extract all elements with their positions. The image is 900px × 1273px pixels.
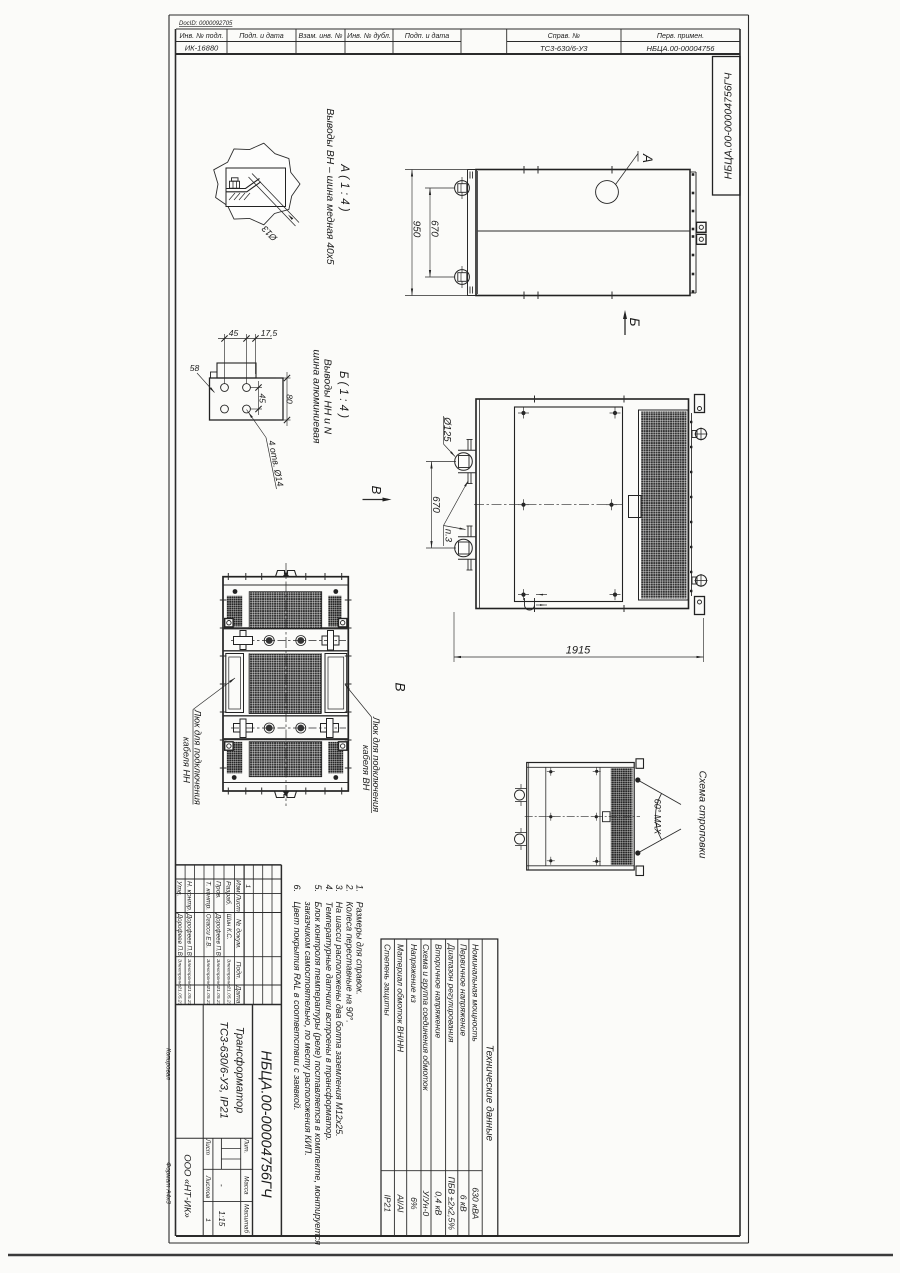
- svg-text:IP21: IP21: [383, 1194, 393, 1212]
- svg-text:Формат А4х3: Формат А4х3: [165, 1162, 172, 1204]
- svg-text:Лит.: Лит.: [242, 1138, 249, 1154]
- svg-text:1915: 1915: [566, 645, 591, 657]
- svg-text:1: 1: [244, 884, 251, 888]
- svg-text:Огасси Е.В.: Огасси Е.В.: [205, 914, 212, 948]
- svg-text:45: 45: [258, 393, 268, 403]
- svg-text:НБЦА.00-00004756ГЧ: НБЦА.00-00004756ГЧ: [258, 1050, 274, 1198]
- svg-text:НБЦА.00-00004756ГЧ: НБЦА.00-00004756ГЧ: [723, 72, 735, 180]
- svg-text:Дорофеев П.В.: Дорофеев П.В.: [176, 913, 183, 958]
- svg-text:0,4 кВ: 0,4 кВ: [433, 1191, 443, 1215]
- svg-text:670: 670: [429, 220, 440, 237]
- svg-text:А ( 1 : 4 ): А ( 1 : 4 ): [338, 163, 350, 211]
- svg-text:Электронно: Электронно: [177, 959, 183, 988]
- svg-text:Диапазон регулирования: Диапазон регулирования: [447, 943, 457, 1043]
- svg-text:Схема строповки: Схема строповки: [697, 771, 709, 859]
- svg-text:60° MAX: 60° MAX: [653, 799, 663, 836]
- svg-text:В: В: [369, 486, 384, 495]
- svg-text:17,5: 17,5: [261, 328, 278, 338]
- svg-text:-: -: [217, 1184, 226, 1187]
- svg-text:Лист: Лист: [235, 893, 242, 912]
- svg-text:Размеры для справок.: Размеры для справок.: [355, 902, 365, 995]
- svg-text:2.: 2.: [344, 884, 354, 893]
- svg-text:Технические данные: Технические данные: [484, 1045, 495, 1142]
- svg-text:Дорофеев П.В.: Дорофеев П.В.: [186, 913, 193, 958]
- svg-text:Блок контроля температуры (рел: Блок контроля температуры (реле) поставл…: [313, 902, 323, 1246]
- svg-text:45: 45: [229, 328, 239, 338]
- svg-text:58: 58: [190, 363, 200, 373]
- svg-text:6%: 6%: [409, 1197, 419, 1210]
- svg-text:Ø125: Ø125: [441, 416, 452, 442]
- svg-text:1.: 1.: [355, 885, 365, 893]
- svg-text:Al/Al: Al/Al: [396, 1193, 406, 1213]
- svg-text:ИК-16880: ИК-16880: [185, 44, 219, 53]
- svg-text:НБЦА.00-00004756: НБЦА.00-00004756: [647, 44, 716, 53]
- svg-text:1:15: 1:15: [217, 1211, 226, 1227]
- svg-text:Подп. и дата: Подп. и дата: [239, 32, 283, 40]
- svg-text:21.05.23: 21.05.23: [226, 986, 232, 1006]
- svg-text:21.05.23: 21.05.23: [186, 986, 192, 1006]
- svg-text:ООО «НТ-ИК»: ООО «НТ-ИК»: [182, 1154, 193, 1218]
- svg-text:Вторичное напряжение: Вторичное напряжение: [433, 944, 443, 1039]
- svg-text:Справ. №: Справ. №: [548, 32, 581, 40]
- svg-text:Трансформатор: Трансформатор: [234, 1027, 246, 1114]
- svg-text:№ докум.: № докум.: [235, 919, 243, 949]
- svg-text:Цвет покрытия RAL в соответств: Цвет покрытия RAL в соответствии с заявк…: [292, 902, 302, 1111]
- svg-text:Электронно: Электронно: [205, 959, 211, 988]
- svg-text:В: В: [393, 682, 408, 691]
- svg-text:На шасси расположены два болта: На шасси расположены два болта заземлени…: [334, 902, 344, 1137]
- svg-text:Утв.: Утв.: [176, 880, 183, 897]
- svg-text:Номинальная мощность: Номинальная мощность: [471, 944, 481, 1042]
- svg-text:80: 80: [285, 394, 295, 404]
- svg-text:Перв. примен.: Перв. примен.: [657, 32, 704, 40]
- svg-text:Люк для подключения: Люк для подключения: [371, 716, 381, 812]
- svg-text:Шин К.С.: Шин К.С.: [225, 914, 232, 940]
- svg-text:21.05.23: 21.05.23: [205, 986, 211, 1006]
- svg-text:Выводы ВН – шина медная 40х5: Выводы ВН – шина медная 40х5: [324, 108, 335, 264]
- svg-text:Листов: Листов: [204, 1175, 211, 1199]
- svg-text:Материал обмоток ВН/НН: Материал обмоток ВН/НН: [396, 944, 406, 1053]
- svg-text:Подп. и дата: Подп. и дата: [405, 32, 449, 40]
- svg-text:6.: 6.: [292, 885, 302, 893]
- svg-text:Электронно: Электронно: [215, 959, 221, 988]
- svg-text:21.05.23: 21.05.23: [215, 986, 221, 1006]
- svg-text:Инв. № подл.: Инв. № подл.: [179, 32, 223, 40]
- svg-text:п.3: п.3: [443, 529, 454, 543]
- svg-text:Изм: Изм: [235, 880, 242, 893]
- svg-text:Температурные датчики встроены: Температурные датчики встроены в трансфо…: [324, 902, 334, 1141]
- svg-text:950: 950: [411, 221, 422, 238]
- svg-text:Разраб.: Разраб.: [225, 881, 233, 906]
- svg-text:ТС3-630/6-У3, IP21: ТС3-630/6-У3, IP21: [218, 1021, 230, 1119]
- svg-text:ПБВ ±2х2,5%: ПБВ ±2х2,5%: [447, 1177, 457, 1231]
- svg-text:У/Ун-0: У/Ун-0: [421, 1189, 431, 1216]
- svg-text:DocID: 0000092705: DocID: 0000092705: [179, 21, 233, 27]
- svg-text:кабеля НН: кабеля НН: [182, 737, 192, 783]
- svg-text:Масштаб: Масштаб: [242, 1204, 249, 1233]
- svg-text:4.: 4.: [324, 885, 334, 893]
- svg-text:Подп.: Подп.: [235, 961, 243, 979]
- svg-text:5.: 5.: [313, 885, 323, 893]
- svg-text:Копировал: Копировал: [165, 1048, 172, 1080]
- svg-text:6 кВ: 6 кВ: [458, 1195, 468, 1212]
- svg-text:шина алюминиевая: шина алюминиевая: [311, 350, 322, 444]
- svg-text:Б ( 1 : 4 ): Б ( 1 : 4 ): [337, 371, 349, 418]
- svg-text:Взам. инв. №: Взам. инв. №: [299, 32, 343, 40]
- svg-text:Масса: Масса: [242, 1176, 249, 1195]
- svg-text:А: А: [640, 153, 655, 163]
- svg-text:Б: Б: [627, 318, 642, 327]
- svg-text:21.05.23: 21.05.23: [177, 986, 183, 1006]
- svg-text:Дата: Дата: [235, 985, 242, 1004]
- svg-text:Люк для подключения: Люк для подключения: [193, 709, 203, 805]
- svg-text:630 кВА: 630 кВА: [471, 1187, 481, 1219]
- svg-text:3.: 3.: [334, 885, 344, 893]
- svg-text:Лист: Лист: [204, 1138, 211, 1155]
- svg-text:Колеса переставные на 90°.: Колеса переставные на 90°.: [344, 902, 354, 1023]
- svg-text:Пров.: Пров.: [214, 881, 221, 899]
- svg-text:Схема и группа соединения обмо: Схема и группа соединения обмоток: [421, 944, 431, 1092]
- svg-text:670: 670: [430, 496, 441, 513]
- svg-text:1: 1: [204, 1218, 211, 1222]
- svg-text:кабеля ВН: кабеля ВН: [361, 745, 371, 791]
- svg-text:Н. контр.: Н. контр.: [185, 881, 192, 912]
- svg-text:ТС3-630/6-У3: ТС3-630/6-У3: [540, 44, 588, 53]
- svg-text:заказчиком самостоятельно, по: заказчиком самостоятельно, по месту расп…: [303, 901, 313, 1156]
- svg-text:Дорофеев П.В.: Дорофеев П.В.: [215, 913, 222, 958]
- svg-text:Напряжение кз: Напряжение кз: [409, 944, 419, 1003]
- svg-text:Первичное напряжение: Первичное напряжение: [458, 944, 468, 1037]
- svg-text:Выводы НН и N: Выводы НН и N: [322, 359, 333, 435]
- svg-text:Электронно: Электронно: [226, 959, 232, 988]
- svg-text:Т. контр.: Т. контр.: [204, 881, 211, 910]
- svg-text:Электронно: Электронно: [186, 959, 192, 988]
- svg-text:Степень защиты: Степень защиты: [383, 944, 393, 1016]
- svg-text:Инв. № дубл.: Инв. № дубл.: [347, 32, 391, 40]
